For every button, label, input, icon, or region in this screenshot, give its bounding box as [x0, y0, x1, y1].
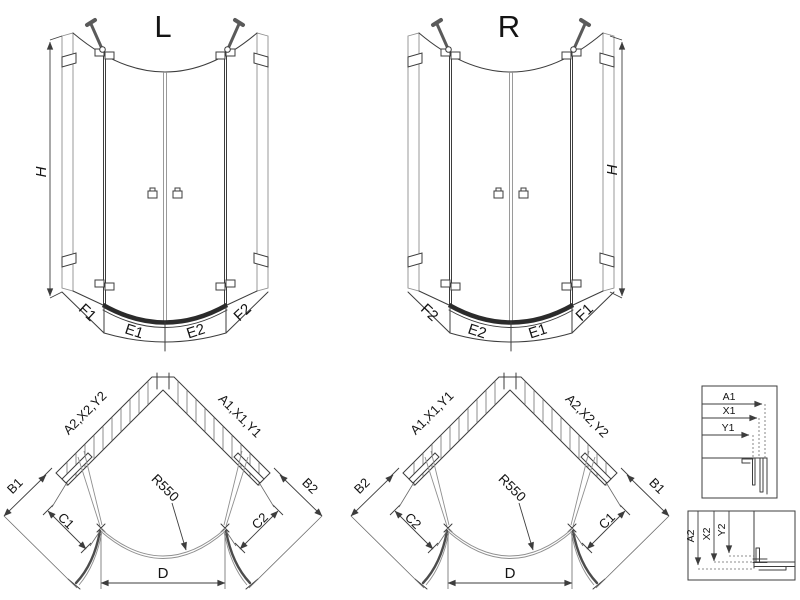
front-right-segment-e2: E2 — [466, 321, 489, 343]
plan-left-outer-dim-right-label: B2 — [299, 475, 321, 497]
detail-callout-top: A1 X1 Y1 — [702, 386, 777, 498]
diagram-canvas: L H F1 E1 E2 F2 R H F2 E2 E1 F1 A2,X2,Y2… — [0, 0, 800, 600]
detail-top-x1-label: X1 — [723, 405, 736, 417]
front-left-segment-e1: E1 — [123, 321, 146, 343]
front-view-left — [62, 20, 268, 351]
detail-callout-bottom: A2 X2 Y2 — [685, 511, 795, 580]
height-dimension-left — [50, 36, 62, 298]
front-left-segment-f2: F2 — [230, 300, 254, 324]
plan-right-panel-dim-right-label: C1 — [596, 510, 618, 532]
front-right-segment-f1: F1 — [572, 300, 596, 324]
plan-left-panel-dim-right-label: C2 — [249, 510, 271, 532]
plan-left-wall-left-label: A2,X2,Y2 — [60, 388, 109, 437]
profile-section-top — [742, 458, 767, 494]
profile-section-bottom — [753, 548, 795, 570]
detail-top-a1-label: A1 — [723, 391, 736, 403]
plan-left-width-label: D — [158, 565, 169, 582]
front-left-height-label: H — [33, 166, 50, 177]
detail-top-y1-label: Y1 — [722, 422, 735, 434]
plan-right-wall-left-label: A1,X1,Y1 — [407, 388, 456, 437]
detail-bottom-x2-label: X2 — [701, 527, 713, 540]
front-left-segment-e2: E2 — [184, 321, 207, 343]
plan-left-radius-label: R550 — [148, 471, 181, 504]
plan-left-panel-dim-left-label: C1 — [55, 510, 77, 532]
front-right-height-label: H — [604, 164, 621, 175]
plan-right-width-label: D — [505, 565, 516, 582]
detail-bottom-y2-label: Y2 — [716, 523, 728, 536]
front-right-title: R — [498, 9, 520, 44]
plan-right-outer-dim-right-label: B1 — [646, 475, 668, 497]
front-left-segment-f1: F1 — [75, 300, 99, 324]
plan-right-panel-dim-left-label: C2 — [402, 510, 424, 532]
front-left-title: L — [154, 9, 171, 44]
detail-bottom-a2-label: A2 — [685, 529, 697, 542]
plan-left-outer-dim-left-label: B1 — [4, 475, 26, 497]
shower-enclosure-technical-drawing: L H F1 E1 E2 F2 R H F2 E2 E1 F1 A2,X2,Y2… — [0, 0, 800, 600]
plan-right-outer-dim-left-label: B2 — [351, 475, 373, 497]
plan-right-radius-label: R550 — [495, 471, 528, 504]
